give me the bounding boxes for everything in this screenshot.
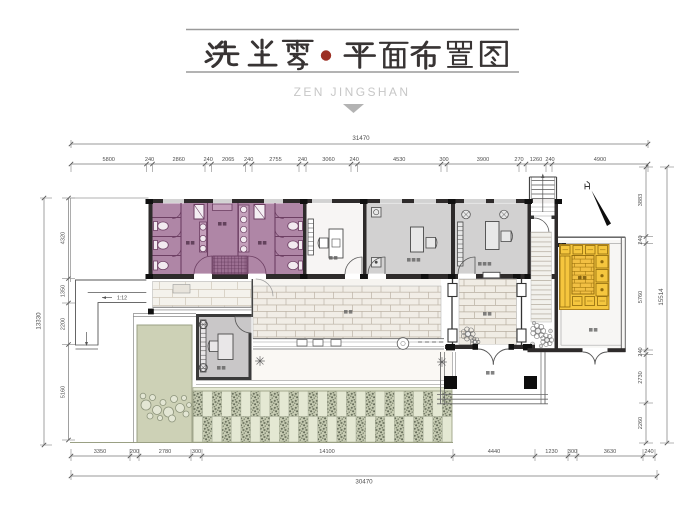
svg-text:240: 240 [298, 157, 307, 163]
svg-text:300: 300 [439, 157, 448, 163]
svg-text:4320: 4320 [61, 232, 67, 244]
svg-text:1:12: 1:12 [117, 296, 127, 302]
svg-text:14100: 14100 [319, 449, 335, 455]
svg-text:3350: 3350 [94, 449, 106, 455]
svg-text:4900: 4900 [594, 157, 606, 163]
svg-text:240: 240 [244, 157, 253, 163]
svg-text:1350: 1350 [61, 285, 67, 297]
svg-text:2860: 2860 [172, 157, 184, 163]
svg-text:240: 240 [644, 449, 653, 455]
svg-text:15514: 15514 [658, 288, 665, 306]
svg-text:3630: 3630 [604, 449, 616, 455]
svg-text:1230: 1230 [545, 449, 557, 455]
svg-text:1260: 1260 [530, 157, 542, 163]
svg-text:240: 240 [638, 347, 644, 356]
svg-text:200: 200 [130, 449, 139, 455]
svg-text:2065: 2065 [222, 157, 234, 163]
svg-text:3900: 3900 [477, 157, 489, 163]
svg-text:240: 240 [350, 157, 359, 163]
svg-text:240: 240 [145, 157, 154, 163]
svg-text:ZEN JINGSHAN: ZEN JINGSHAN [294, 85, 411, 99]
svg-text:2780: 2780 [159, 449, 171, 455]
svg-text:4530: 4530 [393, 157, 405, 163]
svg-text:240: 240 [204, 157, 213, 163]
svg-text:300: 300 [568, 449, 577, 455]
svg-text:300: 300 [192, 449, 201, 455]
svg-text:5160: 5160 [61, 386, 67, 398]
svg-text:13330: 13330 [36, 312, 43, 330]
svg-text:240: 240 [545, 157, 554, 163]
svg-text:30470: 30470 [355, 479, 373, 486]
svg-text:31470: 31470 [352, 135, 370, 142]
svg-text:2755: 2755 [269, 157, 281, 163]
svg-text:5760: 5760 [638, 291, 644, 303]
svg-text:3883: 3883 [638, 194, 644, 206]
svg-text:2260: 2260 [638, 417, 644, 429]
svg-text:270: 270 [514, 157, 523, 163]
svg-text:240: 240 [638, 235, 644, 244]
svg-text:3060: 3060 [322, 157, 334, 163]
svg-text:2730: 2730 [638, 371, 644, 383]
svg-text:4440: 4440 [488, 449, 500, 455]
svg-text:5800: 5800 [102, 157, 114, 163]
svg-text:2200: 2200 [61, 318, 67, 330]
